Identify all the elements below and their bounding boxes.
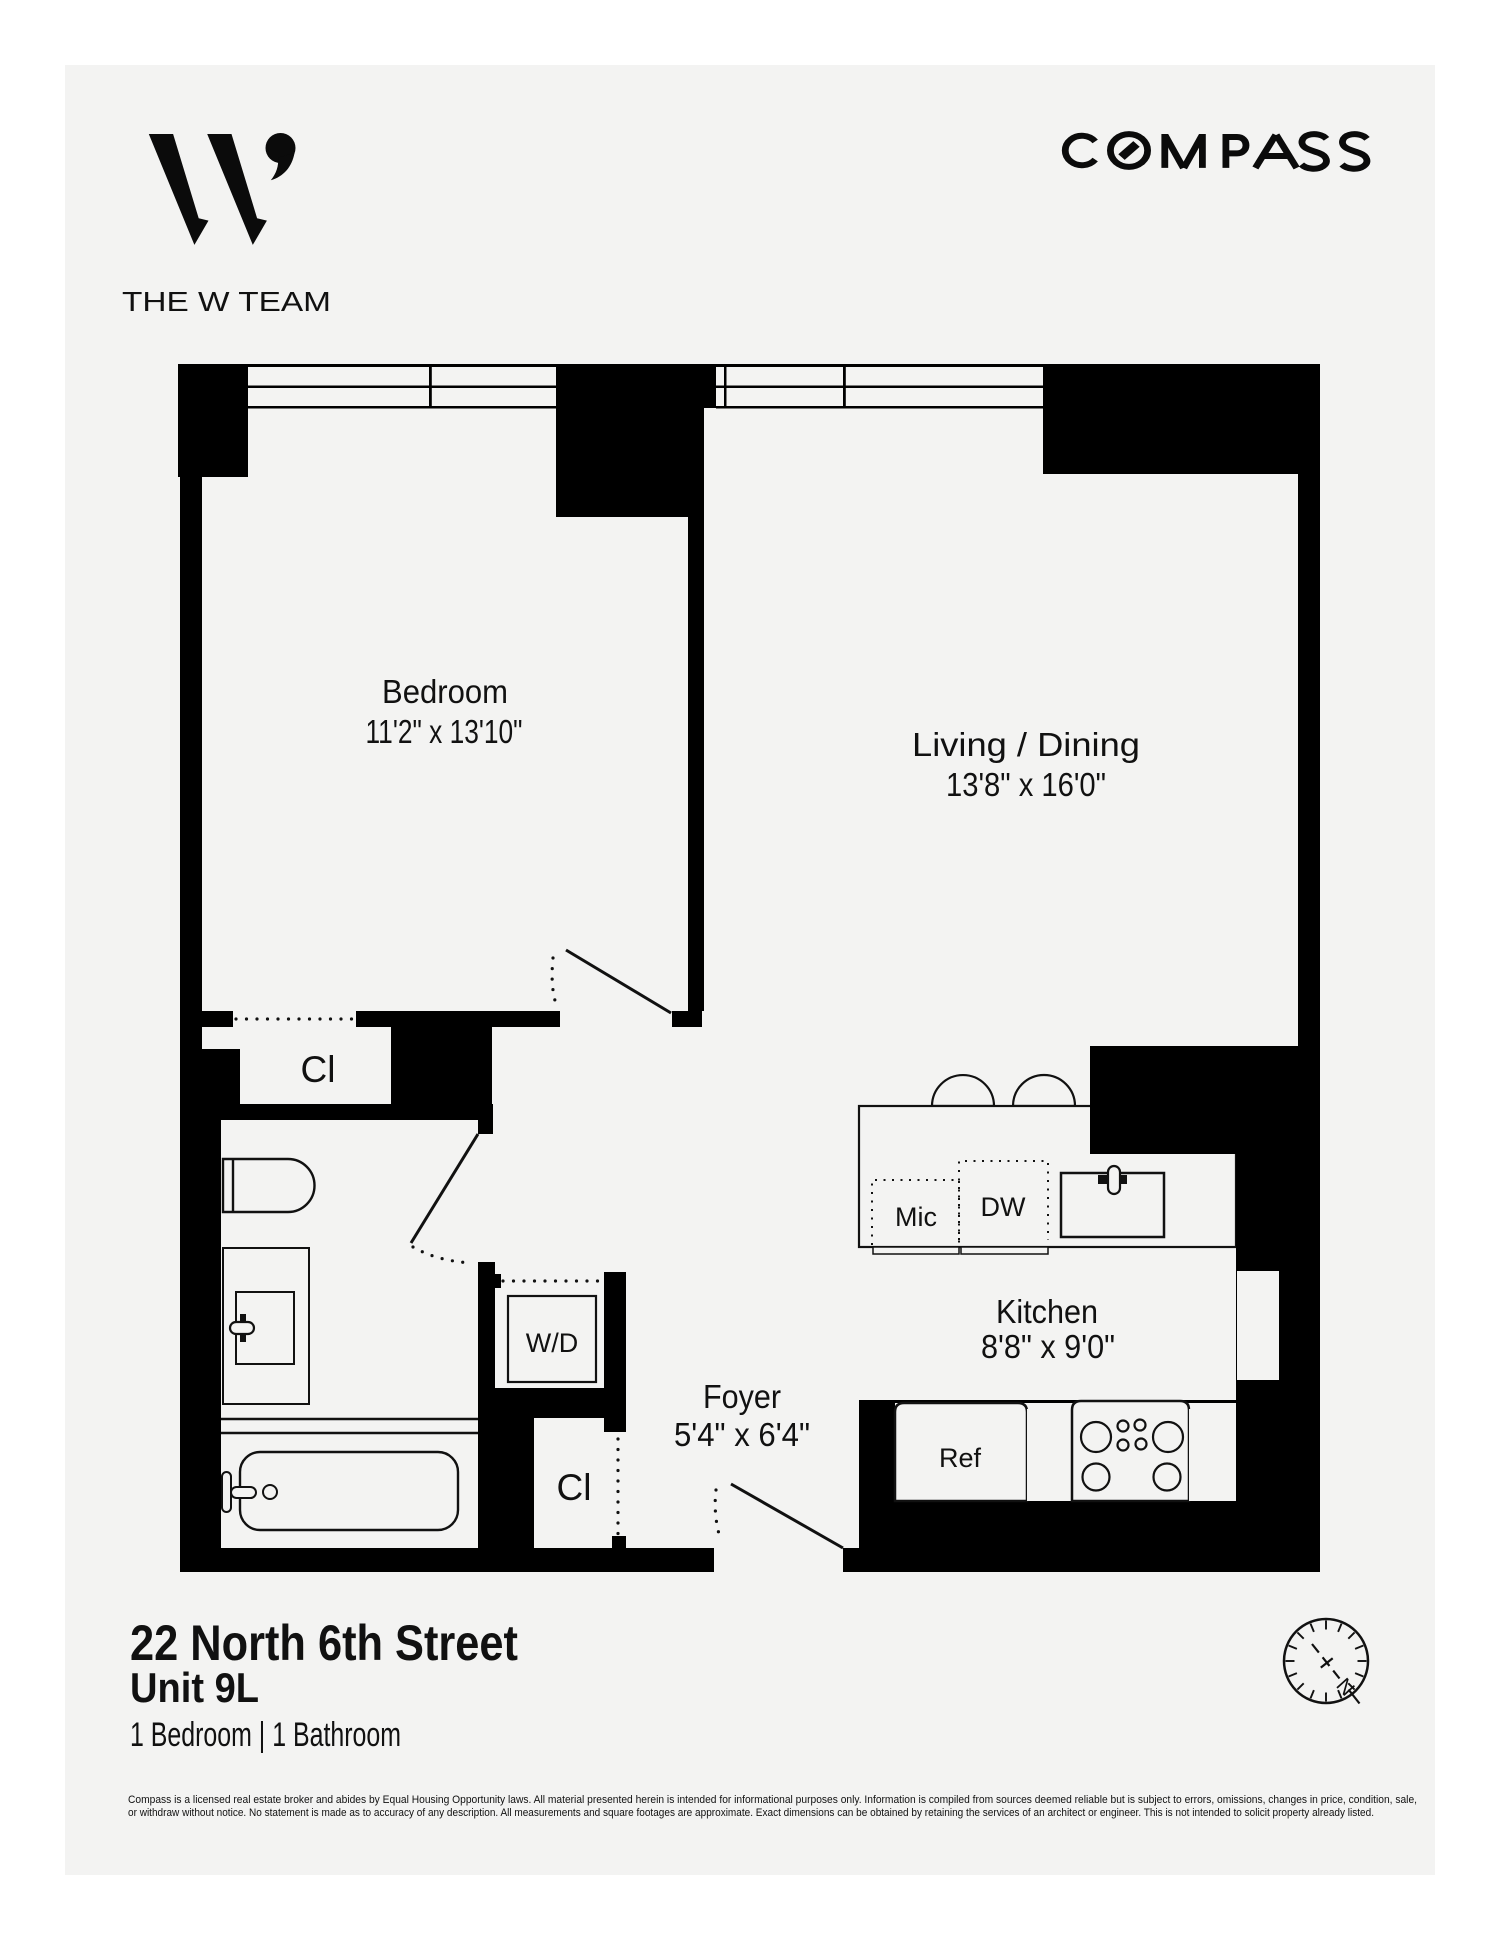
svg-text:Living / Dining: Living / Dining xyxy=(912,726,1140,763)
svg-text:Unit 9L: Unit 9L xyxy=(130,1664,259,1711)
svg-text:Bedroom: Bedroom xyxy=(382,673,508,710)
svg-text:22 North 6th Street: 22 North 6th Street xyxy=(130,1615,518,1671)
svg-text:Foyer: Foyer xyxy=(703,1378,781,1415)
svg-text:5'4" x 6'4": 5'4" x 6'4" xyxy=(674,1416,810,1453)
svg-text:Kitchen: Kitchen xyxy=(996,1293,1098,1330)
svg-text:DW: DW xyxy=(981,1192,1026,1222)
svg-text:8'8" x 9'0": 8'8" x 9'0" xyxy=(981,1328,1115,1365)
svg-text:13'8" x 16'0": 13'8" x 16'0" xyxy=(946,766,1106,803)
svg-text:Cl: Cl xyxy=(557,1467,592,1508)
svg-text:Compass is a licensed real est: Compass is a licensed real estate broker… xyxy=(128,1794,1417,1806)
svg-text:1 Bedroom | 1 Bathroom: 1 Bedroom | 1 Bathroom xyxy=(130,1716,401,1754)
svg-text:Mic: Mic xyxy=(895,1202,937,1232)
svg-text:W/D: W/D xyxy=(526,1328,578,1358)
svg-text:11'2" x 13'10": 11'2" x 13'10" xyxy=(366,713,523,750)
svg-text:Ref: Ref xyxy=(939,1443,982,1473)
svg-text:Cl: Cl xyxy=(301,1049,336,1090)
svg-text:or withdraw without notice. No: or withdraw without notice. No statement… xyxy=(128,1807,1374,1819)
svg-text:THE W TEAM: THE W TEAM xyxy=(122,286,331,317)
